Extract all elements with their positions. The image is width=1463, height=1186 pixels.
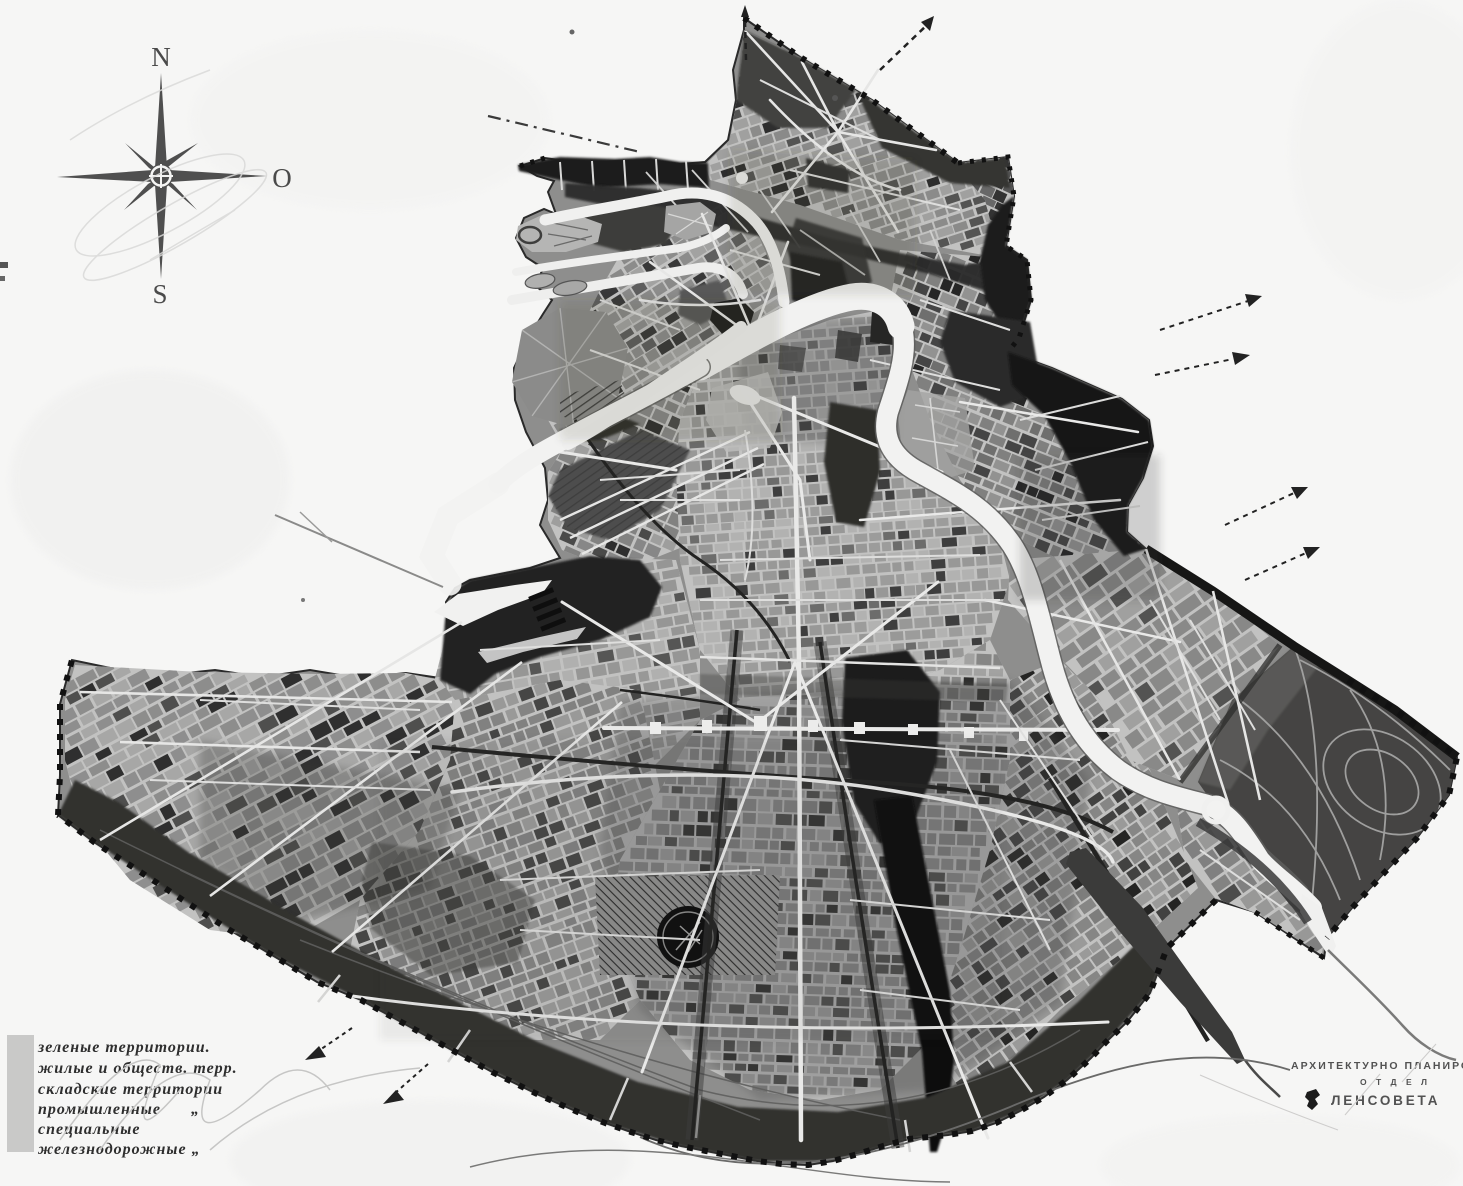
svg-text:железнодорожные „: железнодорожные „ bbox=[37, 1141, 201, 1158]
svg-text:специальные: специальные bbox=[38, 1121, 141, 1138]
svg-text:складские территории: складские территории bbox=[38, 1081, 223, 1098]
svg-text:ЛЕНСОВЕТА: ЛЕНСОВЕТА bbox=[1331, 1093, 1440, 1108]
svg-text:промышленные „: промышленные „ bbox=[38, 1101, 200, 1118]
svg-text:N: N bbox=[151, 42, 171, 72]
svg-text:S: S bbox=[152, 279, 167, 309]
svg-text:жилые и обществ. терр.: жилые и обществ. терр. bbox=[37, 1060, 238, 1077]
svg-text:зеленые территории.: зеленые территории. bbox=[37, 1039, 211, 1056]
svg-text:O: O bbox=[272, 163, 292, 193]
svg-text:АРХИТЕКТУРНО ПЛАНИРОВО: АРХИТЕКТУРНО ПЛАНИРОВО bbox=[1291, 1060, 1463, 1072]
